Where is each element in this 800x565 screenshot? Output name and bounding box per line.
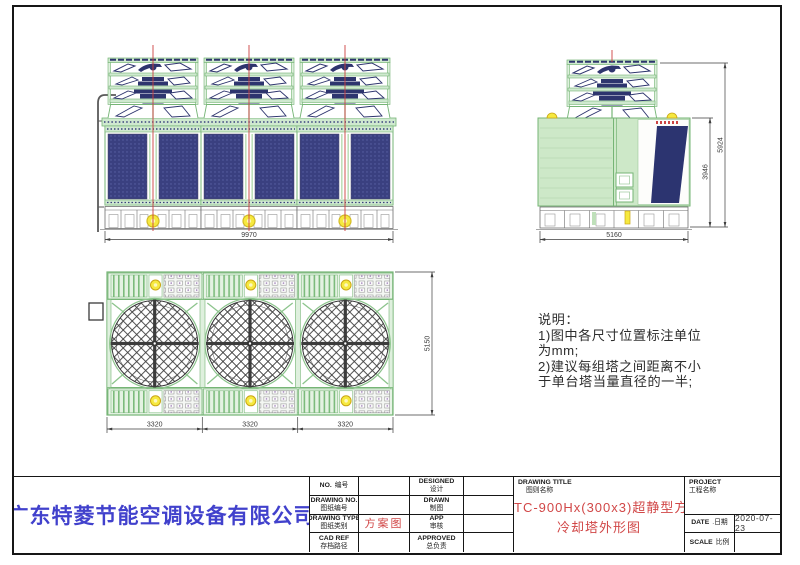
notes: 说明： 1)图中各尺寸位置标注单位 为mm; 2)建议每组塔之间距离不小 于单台… <box>538 312 738 390</box>
drawing-sheet: 9970 <box>0 0 800 565</box>
date-label: DATE .日期 <box>685 515 735 534</box>
info-value-drawing-no <box>359 496 410 515</box>
info-label-cad-ref: CAD REF 存档路径 <box>310 533 359 552</box>
inlet-flange <box>89 303 103 320</box>
sign-label-approved: APPROVED 总负责 <box>410 533 464 552</box>
title-block: 广东特菱节能空调设备有限公司 NO. 编号 DRAWING NO. 图纸编号 D… <box>12 476 782 555</box>
sign-value-approved <box>464 533 514 552</box>
info-value-drawing-type: 方案图 <box>359 515 410 534</box>
scale-value <box>735 533 782 552</box>
dim-plan-cell-3: 3320 <box>338 422 354 429</box>
notes-line: 于单台塔当量直径的一半; <box>538 374 738 390</box>
company-name: 广东特菱节能空调设备有限公司 <box>14 500 310 530</box>
side-view: 5160 3946 5924 <box>536 50 728 243</box>
plan-view: 3320 3320 3320 5150 <box>89 272 435 433</box>
drawing-title-cell: DRAWING TITLE 图则名称 TC-900Hx(300x3)超静型方形横… <box>514 477 685 552</box>
sign-label-designed: DESIGNED 设计 <box>410 477 464 496</box>
dim-plan-cell-2: 3320 <box>242 422 258 429</box>
project-cell: PROJECT 工程名称 <box>685 477 782 515</box>
sign-label-app: APP 审核 <box>410 515 464 534</box>
sign-label-drawn: DRAWN 制图 <box>410 496 464 515</box>
front-view: 9970 <box>98 45 398 243</box>
dim-side-body-height: 3946 <box>703 164 710 180</box>
sign-value-app <box>464 515 514 534</box>
dim-front-width: 9970 <box>241 232 257 239</box>
info-label-no: NO. 编号 <box>310 477 359 496</box>
notes-heading: 说明： <box>538 312 738 328</box>
info-value-cad-ref <box>359 533 410 552</box>
dim-plan-depth: 5150 <box>425 336 432 352</box>
dim-plan-cell-1: 3320 <box>147 422 163 429</box>
scale-label: SCALE 比例 <box>685 533 735 552</box>
sign-value-designed <box>464 477 514 496</box>
info-label-drawing-type: DRAWING TYPE 图纸类别 <box>310 515 359 534</box>
info-label-drawing-no: DRAWING NO. 图纸编号 <box>310 496 359 515</box>
dim-side-width: 5160 <box>606 232 622 239</box>
notes-line: 2)建议每组塔之间距离不小 <box>538 359 738 375</box>
dim-side-total-height: 5924 <box>718 137 725 153</box>
notes-line: 为mm; <box>538 343 738 359</box>
drawing-title-line1: TC-900Hx(300x3)超静型方形横流式 <box>514 499 684 516</box>
info-value-no <box>359 477 410 496</box>
date-value: 2020-07-23 <box>735 515 782 534</box>
notes-line: 1)图中各尺寸位置标注单位 <box>538 328 738 344</box>
sign-value-drawn <box>464 496 514 515</box>
drawing-title-line2: 冷却塔外形图 <box>514 519 684 536</box>
company-cell: 广东特菱节能空调设备有限公司 <box>14 477 310 552</box>
